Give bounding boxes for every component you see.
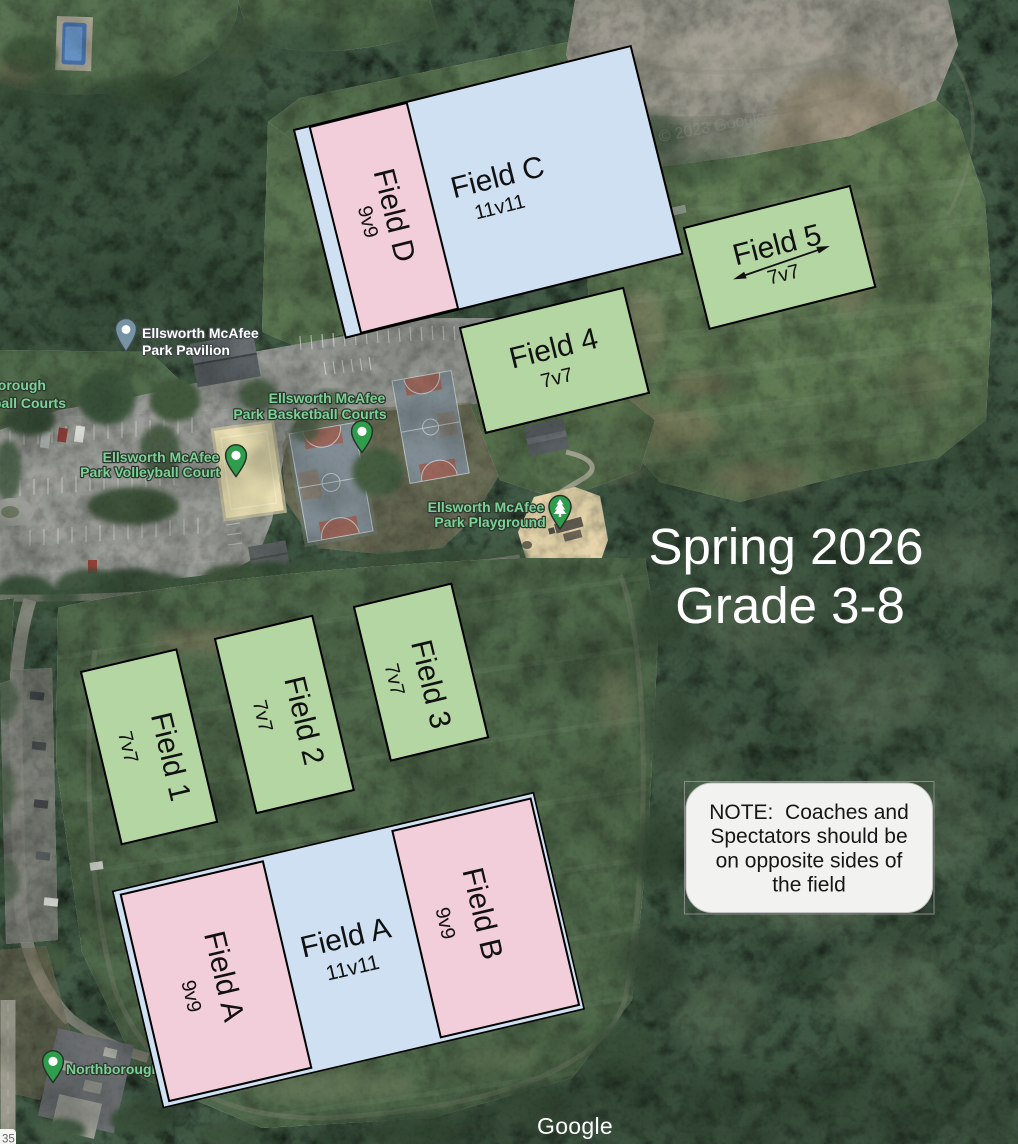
svg-text:Grade 3-8: Grade 3-8 [675,577,905,634]
svg-text:Park Pavilion: Park Pavilion [142,342,230,358]
svg-text:Ellsworth McAfee: Ellsworth McAfee [269,390,386,406]
svg-text:NOTE: Coaches and: NOTE: Coaches and [709,801,909,824]
svg-text:Park Basketball Courts: Park Basketball Courts [233,406,386,422]
svg-text:ball Courts: ball Courts [0,395,66,411]
svg-text:on opposite sides of: on opposite sides of [716,849,903,872]
svg-text:orough: orough [0,377,46,393]
svg-text:Ellsworth McAfee: Ellsworth McAfee [428,499,545,515]
svg-text:the field: the field [772,874,846,897]
svg-text:Ellsworth McAfee: Ellsworth McAfee [103,449,220,465]
svg-text:Ellsworth McAfee: Ellsworth McAfee [142,325,259,341]
svg-text:Northborough: Northborough [66,1061,160,1077]
svg-text:Spectators should be: Spectators should be [710,825,907,848]
svg-text:Spring 2026: Spring 2026 [648,518,923,575]
svg-text:Google: Google [537,1113,613,1139]
svg-text:Park Volleyball Court: Park Volleyball Court [80,464,220,480]
svg-text:Park Playground: Park Playground [434,514,545,530]
svg-text:35: 35 [2,1134,15,1144]
